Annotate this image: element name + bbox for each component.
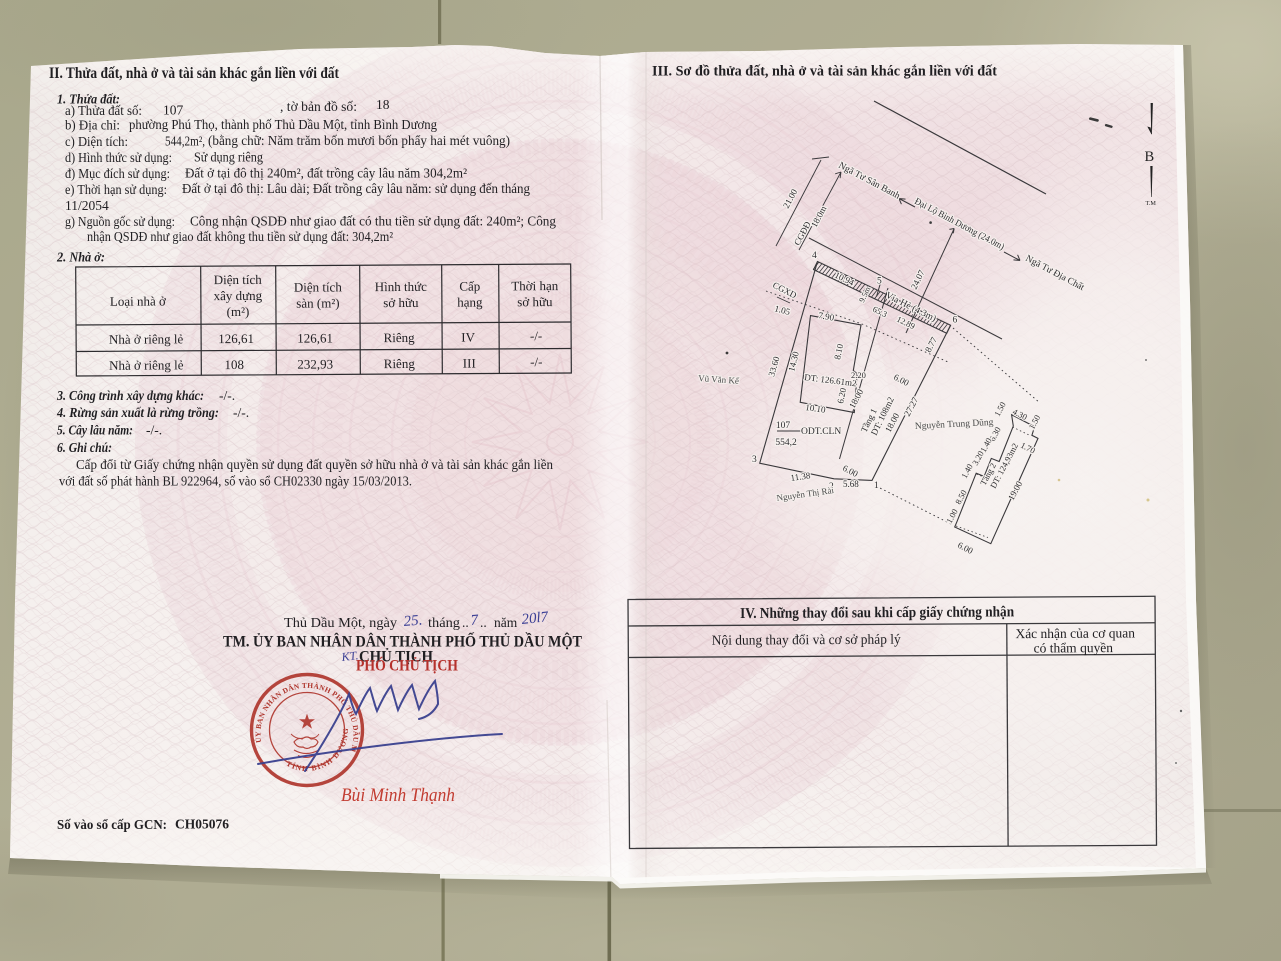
svg-text:sàn (m²): sàn (m²) <box>296 295 339 310</box>
svg-text:25.: 25. <box>403 612 423 630</box>
svg-text:-/-: -/- <box>530 328 542 343</box>
svg-text:6: 6 <box>953 316 958 326</box>
svg-text:Thủ Dầu Một, ngày: Thủ Dầu Một, ngày <box>284 615 397 630</box>
svg-text:(bằng chữ: Năm trăm bốn mươi b: (bằng chữ: Năm trăm bốn mươi bốn phẩy ha… <box>208 133 510 148</box>
svg-text:3: 3 <box>752 455 757 465</box>
svg-text:18: 18 <box>376 97 390 112</box>
svg-text:nhận QSDĐ như giao đất không t: nhận QSDĐ như giao đất không thu tiền sử… <box>87 229 393 244</box>
svg-text:IV: IV <box>461 330 475 345</box>
svg-text:Nhà ở riêng lẻ: Nhà ở riêng lẻ <box>109 357 184 372</box>
svg-text:554,2: 554,2 <box>775 438 797 448</box>
svg-text:107: 107 <box>776 421 791 431</box>
svg-text:-/-: -/- <box>530 354 542 369</box>
svg-text:Cấp: Cấp <box>459 279 480 294</box>
svg-text:108: 108 <box>224 357 244 372</box>
svg-text:T.M: T.M <box>1146 200 1157 207</box>
svg-text:hạng: hạng <box>457 295 483 310</box>
svg-text:II. Thửa đất, nhà ở và tài sản: II. Thửa đất, nhà ở và tài sản khác gắn … <box>49 65 340 82</box>
svg-text:5.68: 5.68 <box>843 479 859 489</box>
svg-text:6. Ghi chú:: 6. Ghi chú: <box>57 440 112 455</box>
svg-text:đ) Mục đích sử dụng:: đ) Mục đích sử dụng: <box>65 166 170 181</box>
svg-text:20l7: 20l7 <box>521 609 551 628</box>
svg-text:Diện tích: Diện tích <box>294 279 343 294</box>
svg-text:-/-.: -/-. <box>146 423 162 438</box>
svg-text:III. Sơ đồ thửa đất, nhà ở và: III. Sơ đồ thửa đất, nhà ở và tài sản kh… <box>652 64 997 80</box>
svg-text:544,2m²,: 544,2m², <box>165 134 205 149</box>
svg-text:a) Thửa đất số:: a) Thửa đất số: <box>65 103 142 118</box>
svg-text:Nhà ở riêng lẻ: Nhà ở riêng lẻ <box>109 331 184 346</box>
svg-text:..: .. <box>480 615 487 630</box>
svg-text:Đất ở tại đô thị 240m², đất tr: Đất ở tại đô thị 240m², đất trồng cây lâ… <box>185 166 467 181</box>
svg-text:b) Địa chỉ:: b) Địa chỉ: <box>65 118 120 133</box>
svg-text:2. Nhà ở:: 2. Nhà ở: <box>56 251 105 266</box>
svg-text:107: 107 <box>163 103 184 118</box>
svg-text:năm: năm <box>494 615 518 630</box>
svg-text:PHÓ CHỦ TỊCH: PHÓ CHỦ TỊCH <box>356 658 458 675</box>
svg-text:Riêng: Riêng <box>384 356 416 371</box>
svg-text:e) Thời hạn sử dụng:: e) Thời hạn sử dụng: <box>65 182 167 197</box>
svg-text:c) Diện tích:: c) Diện tích: <box>65 134 128 149</box>
svg-text:Sử dụng riêng: Sử dụng riêng <box>194 150 263 165</box>
svg-text:g) Nguồn gốc sử dụng:: g) Nguồn gốc sử dụng: <box>65 214 175 229</box>
svg-text:Hình thức: Hình thức <box>375 279 427 294</box>
svg-text:126,61: 126,61 <box>297 330 333 345</box>
svg-text:Loại nhà ở: Loại nhà ở <box>110 293 167 308</box>
svg-text:xây dựng: xây dựng <box>214 288 263 303</box>
svg-text:5. Cây lâu năm:: 5. Cây lâu năm: <box>57 423 133 438</box>
svg-text:với đất số phát hành BL 922964: với đất số phát hành BL 922964, số vào s… <box>59 474 412 489</box>
svg-text:sở hữu: sở hữu <box>383 295 419 310</box>
svg-text:1: 1 <box>874 481 879 491</box>
svg-text:3. Công trình xây dựng khác:: 3. Công trình xây dựng khác: <box>56 388 204 403</box>
svg-text:-/-.: -/-. <box>219 388 235 403</box>
svg-text:126,61: 126,61 <box>218 331 254 346</box>
svg-text:5: 5 <box>877 277 882 287</box>
svg-text:CH05076: CH05076 <box>175 817 229 832</box>
svg-text:IV. Những thay đổi sau khi cấp: IV. Những thay đổi sau khi cấp giấy chứn… <box>740 604 1015 622</box>
svg-text:4: 4 <box>812 251 817 261</box>
svg-text:Riêng: Riêng <box>384 330 416 345</box>
svg-text:Cấp đổi từ Giấy chứng nhận quy: Cấp đổi từ Giấy chứng nhận quyền sử dụng… <box>76 457 553 472</box>
svg-text:11/2054: 11/2054 <box>65 198 109 213</box>
svg-text:sở hữu: sở hữu <box>517 294 553 309</box>
svg-text:III: III <box>463 356 476 371</box>
svg-text:Công nhận QSDĐ như giao đất có: Công nhận QSDĐ như giao đất có thu tiền … <box>190 214 556 229</box>
svg-text:..: .. <box>462 615 469 630</box>
svg-text:(m²): (m²) <box>227 304 250 319</box>
svg-text:phường Phú Thọ, thành phố Thủ: phường Phú Thọ, thành phố Thủ Dầu Một, t… <box>129 117 437 132</box>
svg-text:Diện tích: Diện tích <box>214 272 263 287</box>
svg-text:tháng: tháng <box>428 615 460 630</box>
svg-text:, tờ bản đồ số:: , tờ bản đồ số: <box>280 99 357 114</box>
svg-text:Bùi Minh Thạnh: Bùi Minh Thạnh <box>341 785 455 806</box>
svg-text:232,93: 232,93 <box>297 356 333 371</box>
svg-text:4. Rừng sản xuất là rừng trồng: 4. Rừng sản xuất là rừng trồng: <box>56 405 219 420</box>
svg-text:Xác nhận của cơ quan: Xác nhận của cơ quan <box>1015 625 1135 641</box>
svg-text:Nội dung thay đổi và cơ sở phá: Nội dung thay đổi và cơ sở pháp lý <box>712 633 901 649</box>
svg-text:B: B <box>1145 149 1155 165</box>
svg-text:Thời hạn: Thời hạn <box>511 278 559 293</box>
svg-text:Đất ở tại đô thị: Lâu dài; Đất: Đất ở tại đô thị: Lâu dài; Đất trồng cây… <box>182 181 530 196</box>
svg-text:có thẩm quyền: có thẩm quyền <box>1034 640 1114 655</box>
svg-text:ODT.CLN: ODT.CLN <box>801 427 841 437</box>
svg-text:-/-.: -/-. <box>233 405 249 420</box>
svg-text:Số vào sổ cấp GCN:: Số vào sổ cấp GCN: <box>57 817 167 832</box>
svg-text:d) Hình thức sử dụng:: d) Hình thức sử dụng: <box>65 150 172 165</box>
